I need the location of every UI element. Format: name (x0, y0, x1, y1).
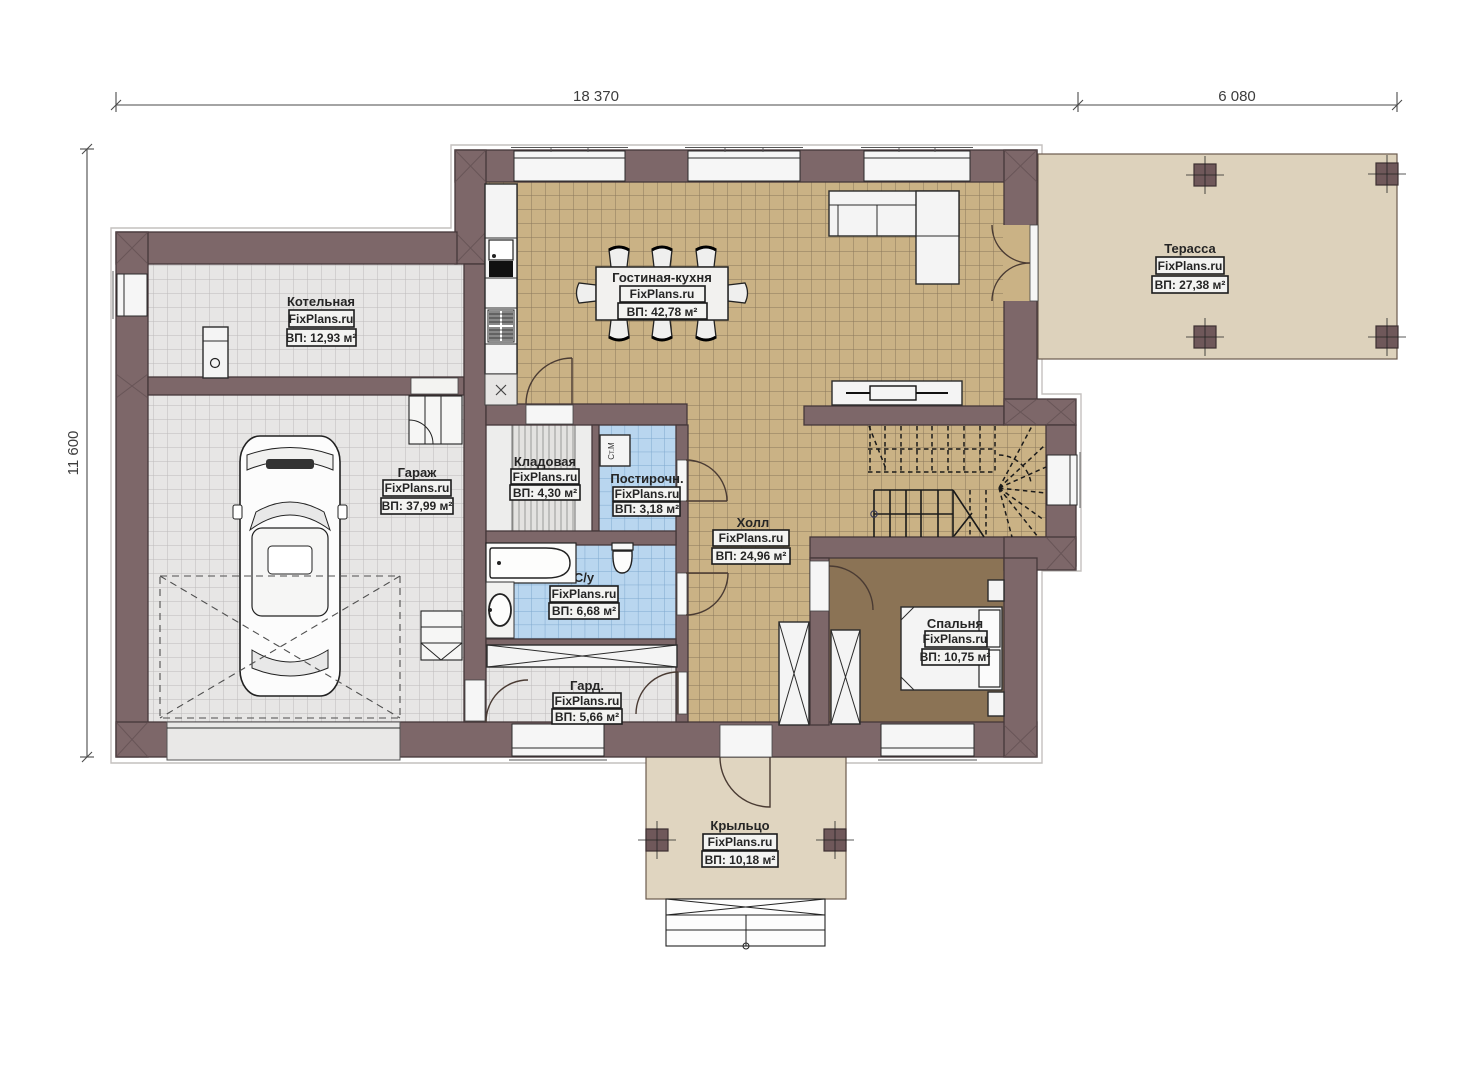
svg-text:ВП: 42,78 м²: ВП: 42,78 м² (627, 305, 698, 319)
svg-text:ВП: 3,18 м²: ВП: 3,18 м² (615, 502, 679, 516)
svg-text:Котельная: Котельная (287, 294, 355, 309)
svg-text:FixPlans.ru: FixPlans.ru (1158, 259, 1223, 273)
svg-text:FixPlans.ru: FixPlans.ru (555, 694, 620, 708)
svg-text:FixPlans.ru: FixPlans.ru (719, 531, 784, 545)
svg-text:Терасса: Терасса (1164, 241, 1216, 256)
svg-text:11 600: 11 600 (65, 431, 82, 476)
svg-text:Кладовая: Кладовая (514, 454, 576, 469)
svg-text:Гараж: Гараж (398, 465, 438, 480)
svg-text:Ст.М: Ст.М (607, 442, 616, 460)
svg-text:Постирочн.: Постирочн. (610, 471, 683, 486)
svg-text:Гостиная-кухня: Гостиная-кухня (612, 270, 712, 285)
svg-text:FixPlans.ru: FixPlans.ru (923, 632, 988, 646)
svg-text:ВП: 5,66 м²: ВП: 5,66 м² (555, 710, 619, 724)
svg-text:С/у: С/у (574, 570, 595, 585)
svg-text:Холл: Холл (737, 515, 770, 530)
svg-text:ВП: 24,96 м²: ВП: 24,96 м² (716, 549, 787, 563)
svg-text:FixPlans.ru: FixPlans.ru (385, 481, 450, 495)
svg-text:ВП: 10,75 м²: ВП: 10,75 м² (920, 650, 991, 664)
svg-text:Крыльцо: Крыльцо (710, 818, 769, 833)
svg-text:FixPlans.ru: FixPlans.ru (615, 487, 680, 501)
svg-text:FixPlans.ru: FixPlans.ru (289, 312, 354, 326)
svg-text:Гард.: Гард. (570, 678, 604, 693)
svg-text:FixPlans.ru: FixPlans.ru (552, 587, 617, 601)
svg-text:ВП: 4,30 м²: ВП: 4,30 м² (513, 486, 577, 500)
svg-text:FixPlans.ru: FixPlans.ru (513, 470, 578, 484)
svg-text:18 370: 18 370 (573, 88, 619, 105)
svg-text:FixPlans.ru: FixPlans.ru (708, 835, 773, 849)
svg-text:ВП: 12,93 м²: ВП: 12,93 м² (286, 331, 357, 345)
svg-text:6 080: 6 080 (1218, 88, 1256, 105)
svg-text:ВП: 27,38 м²: ВП: 27,38 м² (1155, 278, 1226, 292)
svg-text:FixPlans.ru: FixPlans.ru (630, 287, 695, 301)
svg-text:ВП: 37,99 м²: ВП: 37,99 м² (382, 499, 453, 513)
svg-text:Спальня: Спальня (927, 616, 983, 631)
svg-text:ВП: 6,68 м²: ВП: 6,68 м² (552, 604, 616, 618)
svg-text:ВП: 10,18 м²: ВП: 10,18 м² (705, 853, 776, 867)
